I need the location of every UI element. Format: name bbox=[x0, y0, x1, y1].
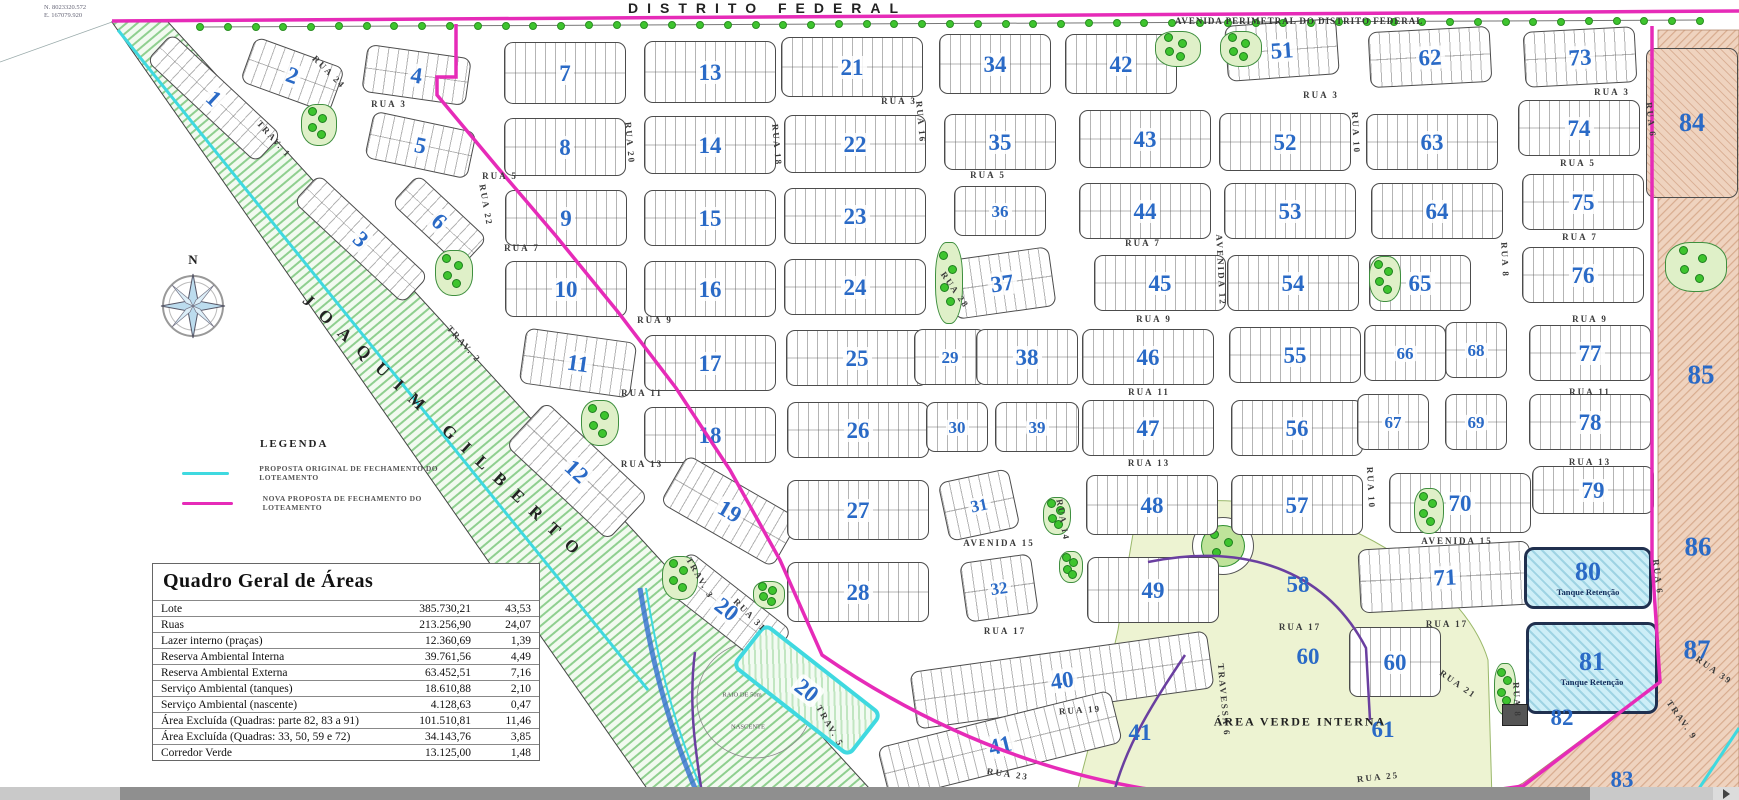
tree-icon bbox=[1696, 17, 1704, 25]
block-number: 14 bbox=[696, 134, 725, 157]
block-84: 84 bbox=[1646, 48, 1738, 198]
block-number: 16 bbox=[696, 278, 725, 301]
top-title: DISTRITO FEDERAL bbox=[628, 0, 907, 16]
block-35: 35 bbox=[944, 114, 1056, 170]
block-number: 1 bbox=[200, 84, 228, 113]
block-number: 25 bbox=[843, 347, 872, 370]
block-number: 26 bbox=[844, 419, 873, 442]
block-number: 65 bbox=[1406, 272, 1435, 295]
block-number: 24 bbox=[841, 276, 870, 299]
block-number: 19 bbox=[712, 494, 749, 528]
block-number: 51 bbox=[1267, 38, 1298, 63]
tree-icon bbox=[613, 21, 621, 29]
table-cell: 13.125,00 bbox=[371, 745, 479, 761]
tree-icon bbox=[598, 429, 607, 438]
table-row: Área Excluída (Quadras: parte 82, 83 a 9… bbox=[153, 713, 539, 729]
block-22: 22 bbox=[784, 115, 926, 173]
tree-icon bbox=[1068, 570, 1077, 579]
block-38: 38 bbox=[976, 329, 1078, 385]
block-13: 13 bbox=[644, 41, 776, 103]
block-number: 68 bbox=[1465, 342, 1488, 359]
block-number: 75 bbox=[1569, 191, 1598, 214]
block-number: 69 bbox=[1465, 414, 1488, 431]
table-row: Reserva Ambiental Interna39.761,564,49 bbox=[153, 649, 539, 665]
block-26: 26 bbox=[787, 402, 929, 458]
praca bbox=[1414, 488, 1444, 534]
street-label: RUA 10 bbox=[1350, 112, 1362, 155]
street-label: RUA 7 bbox=[1562, 232, 1598, 242]
table-cell: 0,47 bbox=[479, 697, 539, 713]
block-number: 40 bbox=[1046, 667, 1078, 694]
tree-icon bbox=[1375, 277, 1384, 286]
compass-north-label: N bbox=[158, 252, 228, 268]
table-row: Área Excluída (Quadras: 33, 50, 59 e 72)… bbox=[153, 729, 539, 745]
block-27: 27 bbox=[787, 480, 929, 540]
block-number: 73 bbox=[1565, 45, 1595, 69]
block-number: 56 bbox=[1283, 417, 1312, 440]
tree-icon bbox=[768, 586, 777, 595]
street-label: RUA 3 bbox=[881, 96, 917, 106]
legend: LEGENDA PROPOSTA ORIGINAL DE FECHAMENTO … bbox=[168, 438, 478, 524]
block-81: 81Tanque Retenção bbox=[1526, 622, 1658, 714]
tree-icon bbox=[454, 261, 463, 270]
block-number: 78 bbox=[1576, 411, 1605, 434]
block-8: 8 bbox=[504, 118, 626, 176]
scroll-right-icon bbox=[1723, 789, 1730, 799]
tree-icon bbox=[679, 566, 688, 575]
tree-icon bbox=[1241, 39, 1250, 48]
area-label: ÁREA VERDE INTERNA bbox=[1214, 715, 1386, 730]
street-label: RUA 7 bbox=[504, 243, 540, 253]
table-row: Serviço Ambiental (nascente)4.128,630,47 bbox=[153, 697, 539, 713]
coord-north: N. 8023320.572 bbox=[44, 4, 86, 12]
table-cell: 43,53 bbox=[479, 601, 539, 617]
street-label: RUA 3 bbox=[1303, 90, 1339, 100]
block-number: 54 bbox=[1279, 272, 1308, 295]
tree-icon bbox=[1428, 499, 1437, 508]
tree-icon bbox=[318, 114, 327, 123]
block-74: 74 bbox=[1518, 100, 1640, 156]
block-34: 34 bbox=[939, 34, 1051, 94]
block-54: 54 bbox=[1227, 255, 1359, 311]
subdivision-map: DISTRITO FEDERAL AVENIDA PERIMETRAL DO D… bbox=[0, 0, 1739, 800]
block-23: 23 bbox=[784, 188, 926, 244]
street-label: RUA 13 bbox=[1569, 457, 1611, 467]
area-label: NASCENTE bbox=[731, 724, 765, 731]
block-number: 49 bbox=[1139, 579, 1168, 602]
block-49: 49 bbox=[1087, 557, 1219, 623]
block-number: 77 bbox=[1576, 342, 1605, 365]
block-number: 44 bbox=[1131, 200, 1160, 223]
table-cell: 11,46 bbox=[479, 713, 539, 729]
table-cell: 7,16 bbox=[479, 665, 539, 681]
tree-icon bbox=[779, 21, 787, 29]
legend-item: NOVA PROPOSTA DE FECHAMENTO DO LOTEAMENT… bbox=[168, 494, 478, 512]
block-30: 30 bbox=[926, 402, 988, 452]
tree-icon bbox=[863, 20, 871, 28]
praca bbox=[753, 581, 785, 609]
tree-icon bbox=[678, 583, 687, 592]
block-48: 48 bbox=[1086, 475, 1218, 535]
block-39: 39 bbox=[995, 402, 1079, 452]
legend-swatch bbox=[182, 472, 229, 475]
tree-icon bbox=[442, 254, 451, 263]
block-number: 79 bbox=[1579, 479, 1608, 502]
block-number: 20 bbox=[788, 672, 825, 708]
street-label: RUA 3 bbox=[1594, 87, 1630, 97]
table-cell: 4,49 bbox=[479, 649, 539, 665]
block-71: 71 bbox=[1357, 541, 1532, 614]
block-number: 60 bbox=[1381, 651, 1410, 674]
block-number: 29 bbox=[939, 349, 962, 366]
table-cell: Serviço Ambiental (tanques) bbox=[153, 681, 371, 697]
tree-icon bbox=[307, 23, 315, 31]
tree-icon bbox=[1698, 254, 1707, 263]
block-number: 13 bbox=[696, 61, 725, 84]
block-number: 27 bbox=[844, 499, 873, 522]
tree-icon bbox=[1212, 548, 1221, 557]
tree-icon bbox=[446, 22, 454, 30]
street-label: RUA 11 bbox=[621, 388, 663, 398]
street-label: RUA 9 bbox=[1572, 314, 1608, 324]
block-number: 66 bbox=[1394, 345, 1417, 362]
block-number: 76 bbox=[1569, 264, 1598, 287]
block-63: 63 bbox=[1366, 114, 1498, 170]
block-number: 67 bbox=[1382, 414, 1405, 431]
scrollbar-thumb[interactable] bbox=[120, 787, 1590, 800]
legend-swatch bbox=[182, 502, 233, 505]
table-cell: 4.128,63 bbox=[371, 697, 479, 713]
areas-table-grid: Lote385.730,2143,53Ruas213.256,9024,07La… bbox=[153, 600, 539, 760]
street-label: RUA 13 bbox=[1128, 458, 1170, 468]
table-cell: Lazer interno (praças) bbox=[153, 633, 371, 649]
praca bbox=[1665, 242, 1727, 292]
block-number: 10 bbox=[552, 278, 581, 301]
block-number: 47 bbox=[1134, 417, 1163, 440]
tree-icon bbox=[1224, 538, 1233, 547]
praca bbox=[581, 400, 619, 446]
street-label: RUA 5 bbox=[482, 171, 518, 181]
area-label: 86 bbox=[1685, 532, 1712, 563]
block-70: 70 bbox=[1389, 473, 1531, 533]
block-number: 70 bbox=[1446, 492, 1475, 515]
table-cell: Serviço Ambiental (nascente) bbox=[153, 697, 371, 713]
block-number: 71 bbox=[1430, 565, 1460, 589]
block-number: 23 bbox=[841, 205, 870, 228]
tree-icon bbox=[1176, 52, 1185, 61]
legend-item: PROPOSTA ORIGINAL DE FECHAMENTO DO LOTEA… bbox=[168, 464, 478, 482]
block-number: 55 bbox=[1281, 344, 1310, 367]
horizontal-scrollbar[interactable] bbox=[0, 787, 1739, 800]
tree-icon bbox=[1529, 18, 1537, 26]
block-79: 79 bbox=[1532, 466, 1654, 514]
block-18: 18 bbox=[644, 407, 776, 463]
tree-icon bbox=[557, 22, 565, 30]
tree-icon bbox=[1057, 20, 1065, 28]
block-32: 32 bbox=[959, 553, 1039, 622]
block-number: 31 bbox=[966, 494, 992, 515]
table-cell: Reserva Ambiental Externa bbox=[153, 665, 371, 681]
block-44: 44 bbox=[1079, 183, 1211, 239]
tank-label: Tanque Retenção bbox=[1561, 677, 1624, 687]
block-number: 5 bbox=[409, 132, 431, 158]
coord-east: E. 167079.920 bbox=[44, 12, 86, 20]
block-number: 39 bbox=[1026, 419, 1049, 436]
block-number: 17 bbox=[696, 352, 725, 375]
block-number: 43 bbox=[1131, 128, 1160, 151]
block-46: 46 bbox=[1082, 329, 1214, 385]
table-cell: Área Excluída (Quadras: 33, 50, 59 e 72) bbox=[153, 729, 371, 745]
block-7: 7 bbox=[504, 42, 626, 104]
tree-icon bbox=[1446, 18, 1454, 26]
praca bbox=[435, 250, 473, 296]
table-cell: Área Excluída (Quadras: parte 82, 83 a 9… bbox=[153, 713, 371, 729]
tree-icon bbox=[1229, 47, 1238, 56]
block-number: 21 bbox=[838, 56, 867, 79]
tree-icon bbox=[1613, 17, 1621, 25]
block-number: 63 bbox=[1418, 131, 1447, 154]
block-28: 28 bbox=[787, 562, 929, 622]
block-75: 75 bbox=[1522, 174, 1644, 230]
tree-icon bbox=[529, 22, 537, 30]
street-label: RUA 7 bbox=[1125, 238, 1161, 248]
tree-icon bbox=[946, 20, 954, 28]
scroll-right-button[interactable] bbox=[1713, 787, 1739, 800]
table-cell: 213.256,90 bbox=[371, 617, 479, 633]
tree-icon bbox=[724, 21, 732, 29]
block-number: 4 bbox=[406, 62, 427, 87]
tree-icon bbox=[1002, 20, 1010, 28]
table-cell: 18.610,88 bbox=[371, 681, 479, 697]
block-number: 8 bbox=[556, 136, 574, 159]
block-60: 60 bbox=[1349, 627, 1441, 697]
tree-icon bbox=[443, 271, 452, 280]
tree-icon bbox=[1164, 33, 1173, 42]
block-number: 48 bbox=[1138, 494, 1167, 517]
street-label: RUA 5 bbox=[1560, 158, 1596, 168]
tree-icon bbox=[1502, 18, 1510, 26]
block-number: 15 bbox=[696, 207, 725, 230]
block-15: 15 bbox=[644, 190, 776, 246]
block-45: 45 bbox=[1094, 255, 1226, 311]
tree-icon bbox=[452, 279, 461, 288]
praca bbox=[301, 104, 337, 146]
tree-icon bbox=[1228, 33, 1237, 42]
block-number: 11 bbox=[563, 350, 594, 377]
area-label: 82 bbox=[1551, 705, 1574, 731]
street-label: RUA 8 bbox=[1499, 242, 1511, 278]
tree-icon bbox=[317, 130, 326, 139]
block-67: 67 bbox=[1357, 394, 1429, 450]
praca bbox=[1220, 31, 1262, 67]
block-number: 18 bbox=[696, 424, 725, 447]
tree-icon bbox=[696, 21, 704, 29]
tree-icon bbox=[767, 597, 776, 606]
street-label: RUA 10 bbox=[1365, 467, 1377, 510]
block-9: 9 bbox=[505, 190, 627, 246]
area-label: 87 bbox=[1684, 635, 1711, 666]
block-number: 80 bbox=[1572, 559, 1604, 585]
street-label: RUA 3 bbox=[371, 99, 407, 109]
areas-table-title: Quadro Geral de Áreas bbox=[153, 564, 539, 600]
tree-icon bbox=[1680, 265, 1689, 274]
table-cell: Corredor Verde bbox=[153, 745, 371, 761]
area-label: 60 bbox=[1297, 644, 1320, 670]
table-cell: 1,48 bbox=[479, 745, 539, 761]
tree-icon bbox=[1497, 668, 1506, 677]
table-cell: 39.761,56 bbox=[371, 649, 479, 665]
block-number: 52 bbox=[1271, 131, 1300, 154]
block-36: 36 bbox=[954, 186, 1046, 236]
tree-icon bbox=[669, 576, 678, 585]
corner-coordinates: N. 8023320.572 E. 167079.920 bbox=[44, 4, 86, 21]
compass-rose-icon bbox=[158, 268, 228, 342]
tree-icon bbox=[807, 21, 815, 29]
block-number: 34 bbox=[981, 53, 1010, 76]
tree-icon bbox=[758, 582, 767, 591]
tree-icon bbox=[669, 559, 678, 568]
table-cell: 34.143,76 bbox=[371, 729, 479, 745]
legend-item-label: PROPOSTA ORIGINAL DE FECHAMENTO DO LOTEA… bbox=[259, 464, 478, 482]
block-68: 68 bbox=[1445, 322, 1507, 378]
tree-icon bbox=[363, 22, 371, 30]
tree-icon bbox=[308, 107, 317, 116]
block-number: 62 bbox=[1415, 45, 1445, 69]
block-number: 46 bbox=[1134, 346, 1163, 369]
table-cell: 63.452,51 bbox=[371, 665, 479, 681]
block-14: 14 bbox=[644, 116, 776, 174]
block-47: 47 bbox=[1082, 400, 1214, 456]
table-row: Serviço Ambiental (tanques)18.610,882,10 bbox=[153, 681, 539, 697]
block-number: 38 bbox=[1013, 346, 1042, 369]
table-cell: 2,10 bbox=[479, 681, 539, 697]
street-label: RUA 9 bbox=[1136, 314, 1172, 324]
tree-icon bbox=[600, 411, 609, 420]
street-label: RUA 11 bbox=[1569, 387, 1611, 397]
table-cell: 101.510,81 bbox=[371, 713, 479, 729]
tree-icon bbox=[974, 20, 982, 28]
tree-icon bbox=[1029, 20, 1037, 28]
block-number: 30 bbox=[946, 419, 969, 436]
table-cell: Lote bbox=[153, 601, 371, 617]
tree-icon bbox=[1113, 19, 1121, 27]
block-66: 66 bbox=[1364, 325, 1446, 381]
block-78: 78 bbox=[1529, 394, 1651, 450]
legend-items: PROPOSTA ORIGINAL DE FECHAMENTO DO LOTEA… bbox=[168, 464, 478, 512]
area-label: RAIO DE 50m bbox=[722, 692, 761, 699]
street-label: RUA 8 bbox=[1511, 682, 1523, 718]
block-number: 6 bbox=[425, 207, 453, 236]
table-cell: 24,07 bbox=[479, 617, 539, 633]
tree-icon bbox=[1426, 517, 1435, 526]
avenida-perimetral-label: AVENIDA PERIMETRAL DO DISTRITO FEDERAL bbox=[1175, 16, 1423, 26]
table-row: Lote385.730,2143,53 bbox=[153, 601, 539, 617]
block-21: 21 bbox=[781, 37, 923, 97]
block-number: 42 bbox=[1107, 53, 1136, 76]
tree-icon bbox=[589, 421, 598, 430]
block-43: 43 bbox=[1079, 110, 1211, 168]
block-number: 81 bbox=[1576, 649, 1608, 675]
areas-table: Quadro Geral de Áreas Lote385.730,2143,5… bbox=[152, 563, 540, 761]
tree-icon bbox=[1383, 285, 1392, 294]
street-label: RUA 17 bbox=[1279, 622, 1321, 632]
table-cell: 1,39 bbox=[479, 633, 539, 649]
tree-icon bbox=[1239, 52, 1248, 61]
block-64: 64 bbox=[1371, 183, 1503, 239]
area-label: 85 bbox=[1688, 360, 1715, 391]
tree-icon bbox=[474, 22, 482, 30]
street-label: RUA 5 bbox=[970, 170, 1006, 180]
block-56: 56 bbox=[1231, 400, 1363, 456]
tree-icon bbox=[1419, 492, 1428, 501]
table-cell: Reserva Ambiental Interna bbox=[153, 649, 371, 665]
compass-rose: N bbox=[158, 252, 228, 347]
tank-label: Tanque Retenção bbox=[1557, 587, 1620, 597]
block-number: 12 bbox=[559, 453, 596, 490]
block-76: 76 bbox=[1522, 247, 1644, 303]
block-number: 7 bbox=[556, 62, 574, 85]
street-label: RUA 9 bbox=[637, 315, 673, 325]
praca bbox=[1155, 31, 1201, 67]
table-cell: 12.360,69 bbox=[371, 633, 479, 649]
block-number: 35 bbox=[986, 131, 1015, 154]
tree-icon bbox=[252, 23, 260, 31]
tree-icon bbox=[279, 23, 287, 31]
tree-icon bbox=[1695, 274, 1704, 283]
tree-icon bbox=[1474, 18, 1482, 26]
block-52: 52 bbox=[1219, 113, 1351, 171]
table-row: Reserva Ambiental Externa63.452,517,16 bbox=[153, 665, 539, 681]
table-cell: 3,85 bbox=[479, 729, 539, 745]
block-53: 53 bbox=[1224, 183, 1356, 239]
block-80: 80Tanque Retenção bbox=[1524, 547, 1652, 609]
tree-icon bbox=[308, 123, 317, 132]
block-number: 57 bbox=[1283, 494, 1312, 517]
legend-title: LEGENDA bbox=[260, 438, 478, 450]
street-label: AVENIDA 15 bbox=[1421, 536, 1493, 546]
tree-icon bbox=[1679, 246, 1688, 255]
table-row: Ruas213.256,9024,07 bbox=[153, 617, 539, 633]
tree-icon bbox=[588, 404, 597, 413]
block-number: 74 bbox=[1565, 117, 1594, 140]
block-24: 24 bbox=[784, 259, 926, 315]
block-number: 2 bbox=[280, 61, 304, 89]
tree-icon bbox=[752, 21, 760, 29]
tree-icon bbox=[939, 251, 948, 260]
tree-icon bbox=[1374, 260, 1383, 269]
legend-item-label: NOVA PROPOSTA DE FECHAMENTO DO LOTEAMENT… bbox=[263, 494, 478, 512]
block-number: 3 bbox=[347, 225, 375, 254]
street-label: RUA 11 bbox=[1128, 387, 1170, 397]
block-69: 69 bbox=[1445, 394, 1507, 450]
block-73: 73 bbox=[1523, 26, 1638, 88]
table-cell: 385.730,21 bbox=[371, 601, 479, 617]
tree-icon bbox=[224, 23, 232, 31]
street-label: RUA 17 bbox=[984, 626, 1026, 636]
block-number: 45 bbox=[1146, 272, 1175, 295]
block-77: 77 bbox=[1529, 325, 1651, 381]
street-label: RUA 13 bbox=[621, 459, 663, 469]
block-10: 10 bbox=[505, 261, 627, 317]
street-label: RUA 17 bbox=[1426, 619, 1468, 629]
tree-icon bbox=[1384, 267, 1393, 276]
tree-icon bbox=[1178, 39, 1187, 48]
tree-icon bbox=[1165, 47, 1174, 56]
block-number: 41 bbox=[983, 730, 1017, 759]
tree-icon bbox=[502, 22, 510, 30]
area-label: 58 bbox=[1287, 572, 1310, 598]
block-17: 17 bbox=[644, 335, 776, 391]
